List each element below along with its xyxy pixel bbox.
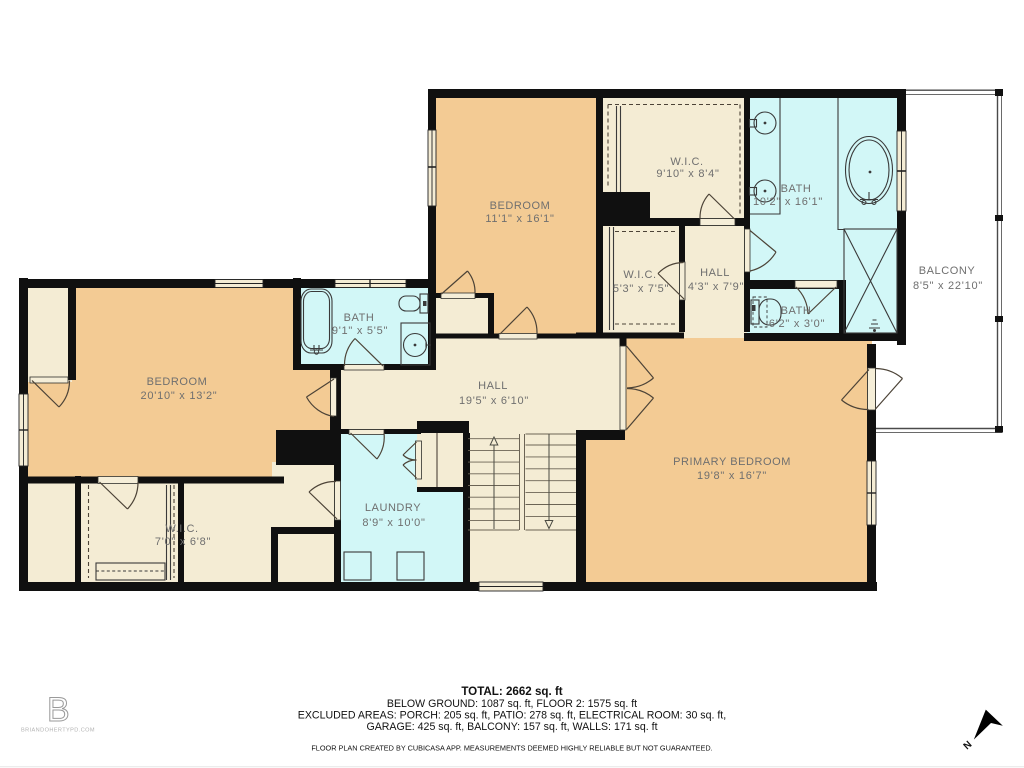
svg-text:PRIMARY BEDROOM: PRIMARY BEDROOM (673, 456, 791, 468)
svg-text:EXCLUDED AREAS: PORCH: 205 sq.: EXCLUDED AREAS: PORCH: 205 sq. ft, PATIO… (298, 710, 726, 722)
svg-text:7'0" x 6'8": 7'0" x 6'8" (155, 536, 211, 548)
svg-text:LAUNDRY: LAUNDRY (365, 502, 421, 514)
svg-text:8'5" x 22'10": 8'5" x 22'10" (913, 280, 983, 292)
svg-text:19'8" x 16'7": 19'8" x 16'7" (697, 470, 767, 482)
svg-text:GARAGE: 425 sq. ft, BALCONY: 1: GARAGE: 425 sq. ft, BALCONY: 157 sq. ft,… (366, 721, 657, 733)
svg-text:20'10" x 13'2": 20'10" x 13'2" (141, 390, 218, 402)
svg-text:BATH: BATH (781, 183, 812, 195)
svg-text:FLOOR PLAN CREATED BY CUBICASA: FLOOR PLAN CREATED BY CUBICASA APP. MEAS… (311, 744, 712, 753)
svg-text:9'1" x 5'5": 9'1" x 5'5" (332, 325, 388, 337)
svg-text:4'3" x 7'9": 4'3" x 7'9" (688, 281, 744, 293)
svg-text:BEDROOM: BEDROOM (147, 376, 208, 388)
svg-text:W.I.C.: W.I.C. (670, 156, 703, 168)
svg-text:BATH: BATH (344, 312, 375, 324)
svg-text:W.I.C.: W.I.C. (623, 269, 656, 281)
svg-text:B: B (47, 691, 70, 729)
svg-text:8'9" x 10'0": 8'9" x 10'0" (362, 517, 425, 529)
svg-text:TOTAL: 2662 sq. ft: TOTAL: 2662 sq. ft (461, 685, 562, 698)
svg-text:BEDROOM: BEDROOM (490, 200, 551, 212)
svg-text:HALL: HALL (478, 380, 508, 392)
svg-text:BATH: BATH (781, 305, 812, 317)
svg-text:9'10" x 8'4": 9'10" x 8'4" (656, 168, 719, 180)
svg-text:11'1" x 16'1": 11'1" x 16'1" (485, 213, 554, 225)
svg-text:BALCONY: BALCONY (919, 265, 976, 277)
svg-text:6'2" x 3'0": 6'2" x 3'0" (769, 318, 825, 330)
svg-text:W.I.C.: W.I.C. (165, 523, 198, 535)
svg-text:BRIANDOHERTYPD.COM: BRIANDOHERTYPD.COM (21, 728, 95, 734)
svg-text:10'2" x 16'1": 10'2" x 16'1" (753, 196, 823, 208)
svg-text:BELOW GROUND: 1087 sq. ft, FLO: BELOW GROUND: 1087 sq. ft, FLOOR 2: 1575… (387, 698, 637, 710)
svg-text:19'5" x 6'10": 19'5" x 6'10" (459, 395, 529, 407)
svg-text:5'3" x 7'5": 5'3" x 7'5" (613, 283, 669, 295)
svg-text:HALL: HALL (700, 267, 730, 279)
